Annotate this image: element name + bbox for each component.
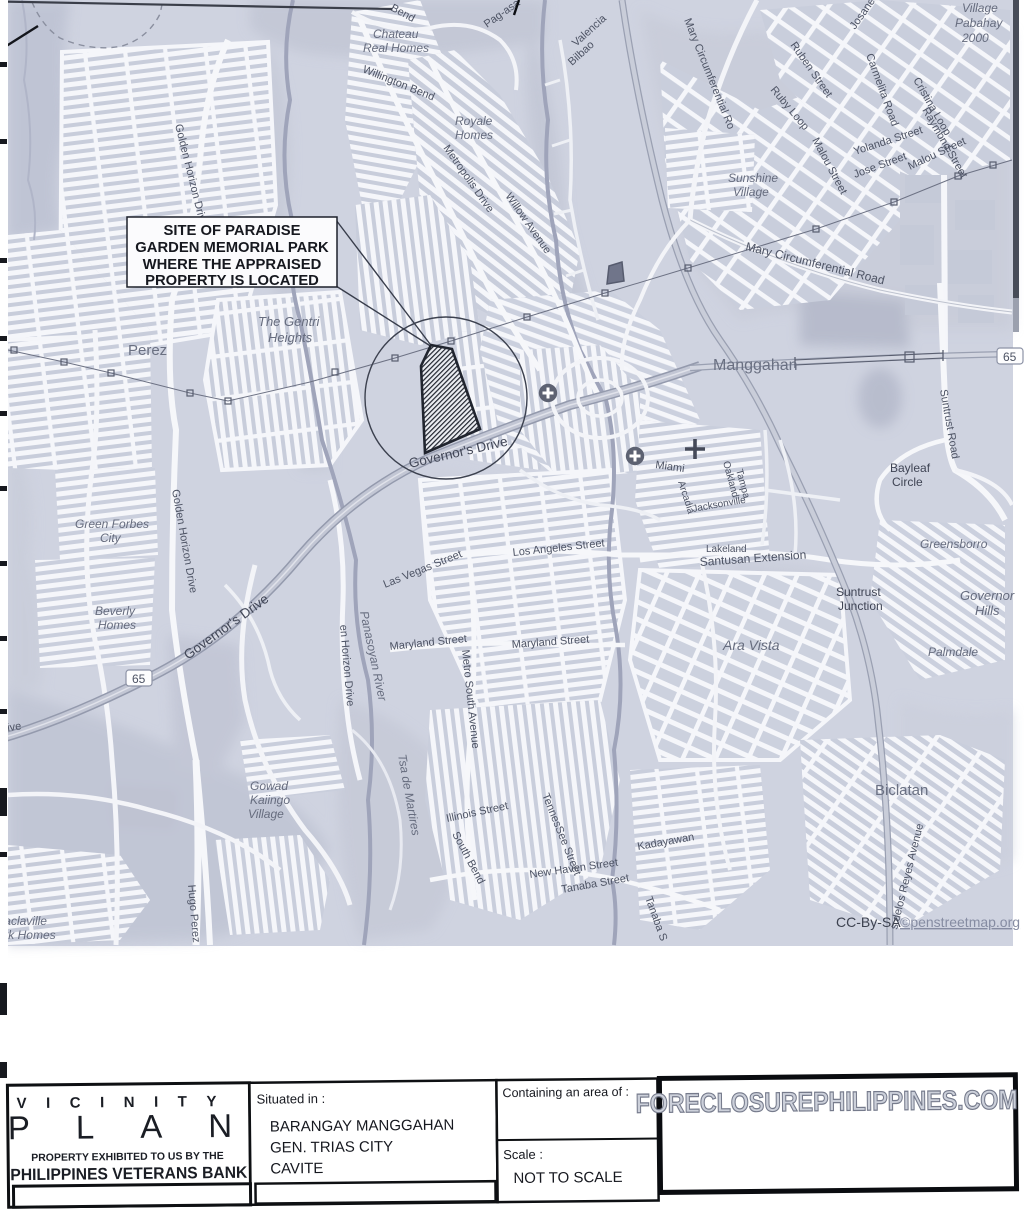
svg-text:Homes: Homes (455, 128, 493, 142)
svg-text:Beverly: Beverly (95, 604, 136, 618)
svg-text:Gowad: Gowad (250, 779, 288, 793)
svg-text:Junction: Junction (838, 599, 883, 613)
svg-text:Sunshine: Sunshine (728, 171, 778, 185)
svg-text:Homes: Homes (98, 618, 136, 632)
svg-text:65: 65 (1003, 350, 1017, 364)
svg-text:Biclatan: Biclatan (875, 782, 928, 799)
svg-text:'rk Homes: 'rk Homes (2, 928, 56, 942)
svg-text:PLAN: PLAN (8, 1106, 279, 1146)
svg-text:Chateau: Chateau (373, 27, 419, 41)
svg-text:Royale: Royale (455, 114, 493, 128)
svg-text:Governor: Governor (960, 588, 1015, 603)
svg-text:PROPERTY IS LOCATED: PROPERTY IS LOCATED (145, 273, 319, 289)
svg-text:Circle: Circle (892, 475, 923, 489)
svg-text:Heights: Heights (268, 330, 313, 345)
svg-text:SITE OF PARADISE: SITE OF PARADISE (163, 223, 300, 239)
svg-text:Palmdale: Palmdale (928, 645, 978, 659)
svg-text:Ara Vista: Ara Vista (722, 637, 780, 653)
svg-text:Village: Village (248, 807, 284, 821)
svg-text:Greensborro: Greensborro (920, 537, 988, 551)
svg-text:The Gentri: The Gentri (258, 314, 321, 329)
svg-text:Bayleaf: Bayleaf (890, 461, 931, 475)
svg-text:FORECLOSUREPHILIPPINES.COM: FORECLOSUREPHILIPPINES.COM (635, 1085, 1017, 1119)
svg-text:Hills: Hills (975, 603, 1000, 618)
svg-text:Green Forbes: Green Forbes (75, 517, 149, 531)
svg-text:CAVITE: CAVITE (270, 1160, 323, 1178)
svg-text:2000: 2000 (961, 31, 989, 45)
svg-text:Perez: Perez (128, 342, 167, 359)
svg-text:City: City (100, 531, 122, 545)
svg-text:Kaiingo: Kaiingo (250, 793, 290, 807)
svg-text:PROPERTY EXHIBITED TO US BY TH: PROPERTY EXHIBITED TO US BY THE (31, 1150, 224, 1164)
svg-text:Village: Village (733, 185, 769, 199)
svg-text:©penstreetmap.org: ©penstreetmap.org (900, 914, 1020, 930)
svg-text:BARANGAY MANGGAHAN: BARANGAY MANGGAHAN (270, 1117, 455, 1136)
svg-text:NOT TO SCALE: NOT TO SCALE (513, 1169, 622, 1187)
svg-text:65: 65 (132, 672, 146, 686)
svg-text:Containing an area of :: Containing an area of : (502, 1085, 629, 1100)
svg-text:Manggahan: Manggahan (713, 357, 798, 374)
svg-text:Pabahay: Pabahay (955, 16, 1003, 30)
svg-text:Situated in :: Situated in : (256, 1091, 325, 1107)
svg-text:Village: Village (962, 1, 998, 15)
svg-text:Suntrust: Suntrust (836, 585, 881, 599)
svg-text:Scale :: Scale : (503, 1147, 543, 1162)
svg-text:GEN. TRIAS CITY: GEN. TRIAS CITY (270, 1138, 393, 1156)
svg-text:Real Homes: Real Homes (363, 41, 429, 55)
svg-text:WHERE THE APPRAISED: WHERE THE APPRAISED (143, 257, 322, 273)
svg-text:GARDEN MEMORIAL PARK: GARDEN MEMORIAL PARK (135, 240, 329, 256)
svg-text:'aclaville: 'aclaville (2, 914, 47, 928)
svg-text:PHILIPPINES VETERANS BANK: PHILIPPINES VETERANS BANK (10, 1164, 247, 1184)
svg-text:CC-By-SA: CC-By-SA (836, 914, 901, 930)
